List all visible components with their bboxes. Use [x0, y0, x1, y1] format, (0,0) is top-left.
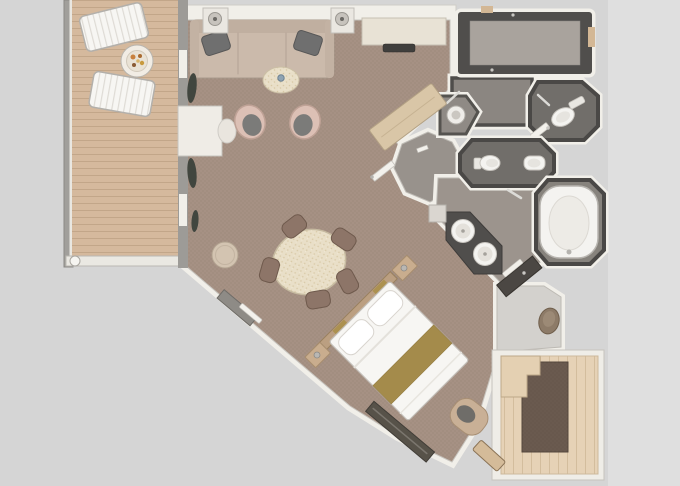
bathtub-basin: [549, 196, 589, 250]
wardrobe-trim-1: [481, 6, 493, 13]
writing-desk: [178, 106, 222, 156]
desk-chair: [218, 119, 236, 143]
dressing-door-handle: [522, 271, 525, 274]
wc-door-handle: [546, 126, 550, 130]
wardrobe-handle-2: [511, 13, 514, 16]
wardrobe-handle-1: [490, 68, 493, 71]
powder-sink-bowl: [452, 111, 461, 120]
food-3: [140, 61, 144, 65]
food-2: [138, 54, 142, 58]
food-4: [132, 63, 136, 67]
bidet-bowl: [486, 159, 498, 167]
nightstand-1-lamp: [401, 265, 407, 271]
veranda-corner-post: [70, 256, 80, 266]
tub-faucet: [567, 250, 572, 255]
toilet-2-bowl: [528, 159, 541, 168]
food-5: [136, 59, 140, 63]
window-wall-opening-1: [179, 50, 187, 78]
layer-veranda: [64, 0, 182, 267]
backdrop-right: [608, 0, 680, 486]
floor-plan-canvas: [0, 0, 680, 486]
suite-floor-plan: [0, 0, 680, 486]
vanity-sink-2-drain: [483, 252, 487, 256]
table-lamp-2-top: [340, 17, 344, 21]
media-cabinet: [362, 18, 446, 45]
layer-wardrobe: [458, 6, 595, 74]
food-1: [131, 55, 136, 60]
tv: [383, 44, 415, 52]
vanity-sink-1-drain: [461, 229, 465, 233]
bath-shelf: [429, 205, 446, 222]
suite-entry-hinge: [370, 175, 374, 179]
nightstand-2-lamp: [314, 352, 320, 358]
coffee-table-decor: [278, 75, 284, 81]
sofa-arm-left: [190, 20, 199, 78]
wardrobe-floor: [470, 21, 580, 65]
table-lamp-1-top: [213, 17, 217, 21]
veranda-wall-bottom: [66, 256, 182, 266]
wardrobe-trim-2: [588, 27, 595, 47]
window-wall-opening-2: [179, 194, 187, 226]
